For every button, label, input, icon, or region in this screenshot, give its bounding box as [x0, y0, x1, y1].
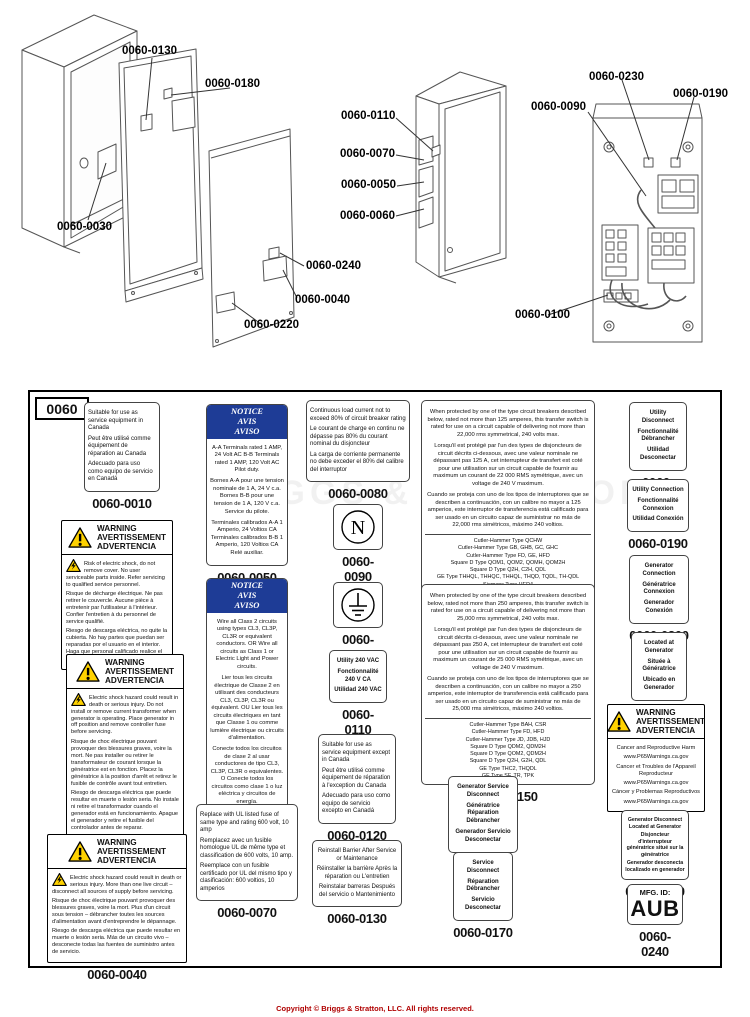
- label-text-line: Disjoncteur d'interrupteur génératrice s…: [625, 832, 685, 858]
- part-number: 0060-0090: [333, 554, 383, 584]
- notice-label-terminals: NOTICEAVISAVISO A-A Terminals rated 1 AM…: [206, 404, 288, 566]
- label-text-line: Lorsqu'il est protégé par l'un des types…: [427, 443, 589, 488]
- label-unit-0060-0010: Suitable for use as service equipment in…: [84, 402, 160, 511]
- label-text-line: Lorsqu'il est protégé par l'un des types…: [427, 627, 589, 672]
- label-continuous-load: Continuous load current not to exceed 80…: [306, 400, 410, 482]
- label-unit-0060-0120: Suitable for use as service equipment ex…: [318, 734, 396, 843]
- label-text-line: Peut être utilisé comme équipement de ré…: [322, 768, 392, 791]
- warning-paragraphs: Electric shock hazard could result in de…: [71, 695, 179, 833]
- warning-body: Cancer and Reproductive Harmwww.P65Warni…: [608, 739, 704, 811]
- callout-0060-0190: 0060-0190: [673, 88, 728, 100]
- label-text-line: Adecuado para uso como equipo de servici…: [88, 461, 156, 484]
- notice-body: Wire all Class 2 circuits using types CL…: [207, 613, 287, 814]
- part-number: 0060-0130: [312, 911, 402, 926]
- breaker-type-list: Cutler-Hammer Type QCHWCutler-Hammer Typ…: [425, 534, 591, 589]
- warning-title-line: AVERTISSEMENT: [97, 533, 166, 542]
- warning-text-line: www.P65Warnings.ca.gov: [612, 754, 700, 761]
- warning-label-shock-cover: WARNINGAVERTISSEMENTADVERTENCIA Risk of …: [61, 520, 173, 670]
- parts-manual-page: 0060-0130 0060-0180 0060-0030 0060-0240 …: [0, 0, 750, 1017]
- part-number: 0060-0040: [47, 967, 187, 982]
- label-utility-disconnect: Utility DisconnectFonctionnalité Débranc…: [629, 402, 687, 471]
- warning-text-line: Risque de choc électrique pouvant provoq…: [52, 898, 182, 926]
- label-text-line: Génératrice Connexion: [633, 582, 685, 598]
- label-text-line: Ubicado en Generador: [635, 677, 683, 693]
- callout-0060-0110: 0060-0110: [341, 110, 395, 122]
- breaker-type-line: GE Type THC2, THQDL: [425, 766, 591, 773]
- warning-body: Electric shock hazard could result in de…: [67, 689, 183, 838]
- warning-title: WARNINGAVERTISSEMENTADVERTENCIA: [97, 524, 166, 551]
- ground-symbol-icon: [339, 586, 377, 624]
- label-unit-0060-0050: NOTICEAVISAVISO A-A Terminals rated 1 AM…: [206, 404, 288, 585]
- label-text-line: Utilidad 240 VAC: [333, 687, 383, 695]
- notice-text-line: Conecte todos los circuitos de clase 2 a…: [210, 746, 284, 806]
- breaker-type-line: Cutler-Hammer Type BAH, CSR: [425, 722, 591, 729]
- label-text-line: Fonctionnalité Connexion: [631, 498, 685, 514]
- callout-0060-0230: 0060-0230: [589, 71, 644, 83]
- warning-body: Electric shock hazard could result in de…: [48, 869, 186, 962]
- label-text-line: Utilidad Conexión: [631, 516, 685, 524]
- label-utility-240vac: Utility 240 VACFonctionnalité 240 V CAUt…: [329, 650, 387, 703]
- label-fuse-replacement: Replace with UL listed fuse of same type…: [196, 804, 298, 901]
- label-text-line: Generator Service Disconnect: [452, 784, 514, 800]
- callout-0060-0040: 0060-0040: [295, 294, 350, 306]
- label-text-line: Réparation Débrancher: [457, 879, 509, 895]
- label-text-line: Located at Generator: [635, 640, 683, 656]
- label-text-line: Cuando se proteja con uno de los tipos d…: [427, 492, 589, 530]
- label-text-line: Reemplace con un fusible certificado por…: [200, 863, 294, 893]
- warning-text-line: Risk of electric shock, do not remove co…: [66, 561, 168, 589]
- warning-label-prop65: WARNINGAVERTISSEMENTADVERTENCIA Cancer a…: [607, 704, 705, 812]
- warning-triangle-icon: [607, 711, 631, 732]
- notice-text-line: Bornes A-A pour une tension nominale de …: [210, 478, 284, 516]
- enclosure-box-drawing: [22, 15, 137, 253]
- warning-paragraphs: Electric shock hazard could result in de…: [52, 875, 182, 957]
- enclosure-box-2-drawing: [416, 72, 506, 283]
- label-utility-connection: Utility ConnectionFonctionnalité Connexi…: [627, 479, 689, 532]
- warning-triangle-icon: [76, 661, 100, 682]
- label-text-line: Fonctionnalité 240 V CA: [333, 669, 383, 685]
- label-text-line: Replace with UL listed fuse of same type…: [200, 812, 294, 835]
- label-unit-0060-0170: Service DisconnectRéparation DébrancherS…: [453, 852, 513, 940]
- warning-text-line: Risque de décharge électrique. Ne pas re…: [66, 591, 168, 626]
- neutral-symbol-icon: N: [339, 508, 377, 546]
- label-text-line: Adecuado para uso como equipo de servici…: [322, 793, 392, 816]
- warning-title-line: AVERTISSEMENT: [636, 717, 705, 726]
- warning-title-line: AVERTISSEMENT: [97, 847, 166, 856]
- warning-title-line: WARNING: [97, 838, 166, 847]
- rating-paragraphs: When protected by one of the type circui…: [425, 593, 591, 714]
- label-reinstall-barrier: Reinstall Barrier After Service or Maint…: [312, 840, 402, 907]
- label-unit-0060-0130: Reinstall Barrier After Service or Maint…: [312, 840, 402, 926]
- label-sheet: 0060 BRIGGS & STRATTON Suitable for use …: [28, 390, 722, 968]
- warning-title: WARNINGAVERTISSEMENTADVERTENCIA: [105, 658, 174, 685]
- label-unit-0060-0140: When protected by one of the type circui…: [421, 400, 595, 613]
- interior-assembly-drawing: [593, 104, 702, 342]
- label-generator-service-disconnect: Generator Service DisconnectGénératrice …: [448, 776, 518, 853]
- callout-0060-0030: 0060-0030: [57, 221, 112, 233]
- warning-title-line: ADVERTENCIA: [636, 726, 705, 735]
- notice-label-class2-wiring: NOTICEAVISAVISO Wire all Class 2 circuit…: [206, 578, 288, 815]
- label-unit-0060-0070: Replace with UL listed fuse of same type…: [196, 804, 298, 920]
- notice-body: A-A Terminals rated 1 AMP, 24 Volt AC B-…: [207, 439, 287, 564]
- exploded-view-drawing: [0, 0, 750, 388]
- notice-header: NOTICEAVISAVISO: [207, 579, 287, 613]
- part-number: 0060-0170: [453, 925, 513, 940]
- label-unit-0060-0090: N 0060-0090: [333, 504, 383, 584]
- notice-text-line: Terminales calibrados A-A 1 Amperio, 24 …: [210, 520, 284, 558]
- callout-0060-0060: 0060-0060: [340, 210, 395, 222]
- callout-0060-0100: 0060-0100: [515, 309, 570, 321]
- warning-body: Risk of electric shock, do not remove co…: [62, 555, 172, 669]
- breaker-type-line: Square D Type QOM2, QDM2H: [425, 751, 591, 758]
- warning-text-line: Risque de choc électrique pouvant provoq…: [71, 739, 179, 788]
- breaker-type-line: Square D Type QDM2, QDM2H: [425, 744, 591, 751]
- part-number: 0060-0070: [196, 905, 298, 920]
- callout-0060-0130: 0060-0130: [122, 45, 177, 57]
- copyright-notice: Copyright © Briggs & Stratton, LLC. All …: [0, 1004, 750, 1013]
- label-text-line: Generador desconecta localizado en gener…: [625, 860, 685, 873]
- part-number: 0060-0240: [627, 929, 683, 959]
- warning-text-line: Cancer and Reproductive Harm: [612, 745, 700, 752]
- label-mfg-id: MFG. ID: AUB: [627, 884, 683, 925]
- warning-title-line: ADVERTENCIA: [105, 676, 174, 685]
- label-text-line: Réinstaller la barrière Après la réparat…: [316, 866, 398, 881]
- label-text-line: Utility 240 VAC: [333, 658, 383, 666]
- label-text-line: Reinstall Barrier After Service or Maint…: [316, 848, 398, 863]
- warning-title: WARNINGAVERTISSEMENTADVERTENCIA: [636, 708, 705, 735]
- breaker-type-list: Cutler-Hammer Type BAH, CSRCutler-Hammer…: [425, 718, 591, 780]
- warning-label-current-transformer: WARNINGAVERTISSEMENTADVERTENCIA Electric…: [66, 654, 184, 839]
- rating-paragraphs: When protected by one of the type circui…: [425, 409, 591, 530]
- notice-title-line: AVISO: [207, 427, 287, 437]
- warning-label-live-circuits: WARNINGAVERTISSEMENTADVERTENCIA Electric…: [47, 834, 187, 963]
- label-text-line: Fonctionnalité Débrancher: [633, 429, 683, 445]
- label-text-line: Peut être utilisé comme équipement de ré…: [88, 436, 156, 459]
- mfg-id-value: AUB: [630, 897, 680, 921]
- inner-panel-drawing: [119, 49, 203, 302]
- label-except-canada: Suitable for use as service equipment ex…: [318, 734, 396, 824]
- notice-title-line: AVISO: [207, 601, 287, 611]
- label-generator-connection: Generator ConnectionGénératrice Connexio…: [629, 555, 689, 624]
- warning-text-line: www.P65Warnings.ca.gov: [612, 799, 700, 806]
- breaker-type-line: Cutler-Hammer Type FD, GE, HFD: [425, 553, 591, 560]
- label-text-line: Génératrice Réparation Débrancher: [452, 803, 514, 826]
- label-unit-0060-0200: Generator ConnectionGénératrice Connexio…: [629, 555, 689, 643]
- warning-text-line: Cancer et Troubles de l'Appareil Reprodu…: [612, 764, 700, 778]
- label-text-line: Generador Conexión: [633, 600, 685, 616]
- svg-text:N: N: [351, 517, 365, 539]
- warning-title-line: ADVERTENCIA: [97, 542, 166, 551]
- electric-shock-triangle-icon: [66, 559, 81, 572]
- neutral-symbol-label: N: [333, 504, 383, 550]
- label-text-line: Service Disconnect: [457, 860, 509, 876]
- warning-title-line: WARNING: [97, 524, 166, 533]
- label-text-line: Utility Disconnect: [633, 410, 683, 426]
- warning-text-line: Riesgo de descarga eléctrica que puede r…: [52, 928, 182, 956]
- label-text-line: Continuous load current not to exceed 80…: [310, 408, 406, 423]
- warning-title: WARNINGAVERTISSEMENTADVERTENCIA: [97, 838, 166, 865]
- electric-shock-triangle-icon: [71, 693, 86, 706]
- callout-0060-0220: 0060-0220: [244, 319, 299, 331]
- label-unit-0060-0150: When protected by one of the type circui…: [421, 584, 595, 804]
- label-text-line: When protected by one of the type circui…: [427, 409, 589, 439]
- breaker-type-line: GE Type THHQL, THHQC, THHQL, THQD, TQDL,…: [425, 574, 591, 581]
- label-breaker-rating-250a: When protected by one of the type circui…: [421, 584, 595, 785]
- label-text-line: La carga de corriente permanente no debe…: [310, 452, 406, 475]
- label-text-line: Generador Servicio Desconectar: [452, 829, 514, 845]
- warning-paragraphs: Risk of electric shock, do not remove co…: [66, 561, 168, 664]
- label-located-at-generator: Located at GeneratorSituée à Génératrice…: [631, 632, 687, 701]
- label-breaker-rating-125a: When protected by one of the type circui…: [421, 400, 595, 594]
- callout-0060-0090: 0060-0090: [531, 101, 586, 113]
- part-number: 0060-0110: [329, 707, 387, 737]
- label-unit-0060-0060: NOTICEAVISAVISO Wire all Class 2 circuit…: [206, 578, 288, 834]
- label-text-line: Suitable for use as service equipment ex…: [322, 742, 392, 765]
- part-number: 0060-0080: [306, 486, 410, 501]
- callout-0060-0180: 0060-0180: [205, 78, 260, 90]
- label-text-line: When protected by one of the type circui…: [427, 593, 589, 623]
- notice-header: NOTICEAVISAVISO: [207, 405, 287, 439]
- warning-text-line: Cáncer y Problemas Reproductivos: [612, 789, 700, 796]
- warning-text-line: www.P65Warnings.ca.gov: [612, 780, 700, 787]
- breaker-type-line: Cutler-Hammer Type JD, JDB, HJD: [425, 737, 591, 744]
- callout-0060-0050: 0060-0050: [341, 179, 396, 191]
- sheet-id-box: 0060: [35, 397, 89, 420]
- label-text-line: Utilidad Desconectar: [633, 447, 683, 463]
- label-service-disconnect: Service DisconnectRéparation DébrancherS…: [453, 852, 513, 921]
- label-text-line: Cuando se proteja con uno de los tipos d…: [427, 676, 589, 714]
- label-text-line: Generator Connection: [633, 563, 685, 579]
- label-text-line: Servicio Desconectar: [457, 897, 509, 913]
- label-text-line: Utility Connection: [631, 487, 685, 495]
- warning-title-line: ADVERTENCIA: [97, 856, 166, 865]
- warning-title-line: WARNING: [636, 708, 705, 717]
- label-text-line: Le courant de charge en continu ne dépas…: [310, 426, 406, 449]
- breaker-type-line: Cutler-Hammer Type QCHW: [425, 538, 591, 545]
- label-unit-0060-0190: Utility ConnectionFonctionnalité Connexi…: [627, 479, 689, 551]
- electric-shock-triangle-icon: [52, 873, 67, 886]
- breaker-type-line: Square D Type QOM1, QOM2, QOMH, QOM2H: [425, 560, 591, 567]
- warning-triangle-icon: [68, 527, 92, 548]
- part-number: 0060-0190: [627, 536, 689, 551]
- breaker-type-line: Square D Type Q2H, G2H, QDL: [425, 758, 591, 765]
- label-canada-service: Suitable for use as service equipment in…: [84, 402, 160, 492]
- breaker-type-line: Cutler-Hammer Type FD, HFD: [425, 729, 591, 736]
- warning-text-line: Electric shock hazard could result in de…: [52, 875, 182, 896]
- label-text-line: Reinstalar barreras Después del servicio…: [316, 884, 398, 899]
- label-unit-0060-0030: WARNINGAVERTISSEMENTADVERTENCIA Electric…: [66, 654, 184, 858]
- notice-text-line: A-A Terminals rated 1 AMP, 24 Volt AC B-…: [210, 445, 284, 475]
- callout-0060-0070: 0060-0070: [340, 148, 395, 160]
- notice-text-line: Wire all Class 2 circuits using types CL…: [210, 619, 284, 672]
- label-unit-0060-0080: Continuous load current not to exceed 80…: [306, 400, 410, 501]
- label-text-line: Remplacez avec un fusible homologue UL d…: [200, 838, 294, 861]
- label-text-line: Suitable for use as service equipment in…: [88, 410, 156, 433]
- ground-symbol-label: [333, 582, 383, 628]
- notice-text-line: Lier tous les circuits électrique de Cla…: [210, 675, 284, 743]
- door-panel-drawing: [209, 129, 294, 347]
- breaker-type-line: Cutler-Hammer Type GB, GHB, GC, GHC: [425, 545, 591, 552]
- warning-text-line: Riesgo de descarga eléctrica que puede r…: [71, 790, 179, 832]
- callout-0060-0240: 0060-0240: [306, 260, 361, 272]
- warning-title-line: WARNING: [105, 658, 174, 667]
- label-text-line: Generator Disconnect Located at Generato…: [625, 817, 685, 830]
- label-unit-0060-0110: Utility 240 VACFonctionnalité 240 V CAUt…: [329, 650, 387, 737]
- part-number: 0060-0010: [84, 496, 160, 511]
- warning-title-line: AVERTISSEMENT: [105, 667, 174, 676]
- label-generator-disconnect-located: Generator Disconnect Located at Generato…: [621, 810, 689, 880]
- label-unit-0060-0240: MFG. ID: AUB 0060-0240: [627, 884, 683, 959]
- breaker-type-line: Square D Type Q2H, C2H, QDL: [425, 567, 591, 574]
- warning-triangle-icon: [68, 841, 92, 862]
- warning-text-line: Electric shock hazard could result in de…: [71, 695, 179, 737]
- label-text-line: Située à Génératrice: [635, 659, 683, 675]
- label-unit-0060-0040: WARNINGAVERTISSEMENTADVERTENCIA Electric…: [47, 834, 187, 982]
